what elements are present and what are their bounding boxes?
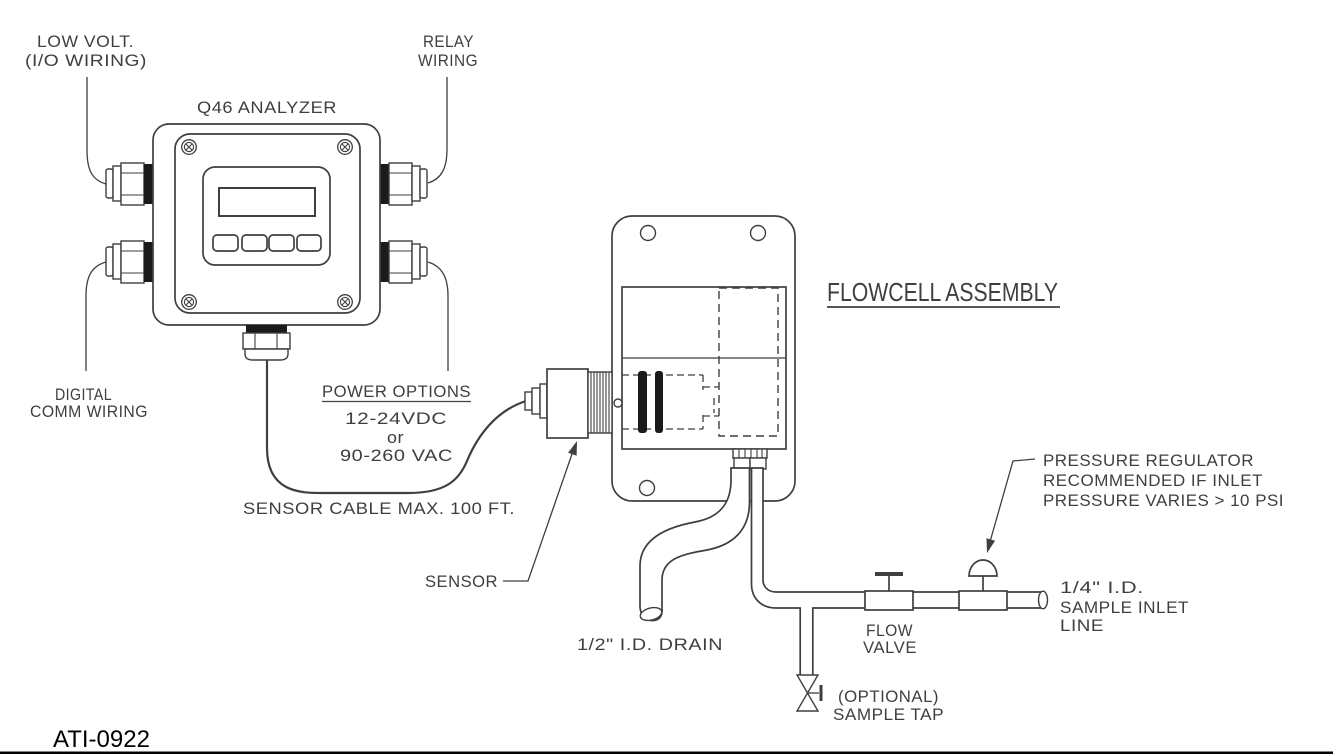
screw-icon: [182, 295, 197, 310]
gland-nut: [389, 241, 412, 283]
power-wire: [428, 262, 448, 371]
gland-end: [420, 247, 427, 276]
diagram-canvas: LOW VOLT. (I/O WIRING) RELAY WIRING Q46 …: [0, 0, 1333, 754]
analyzer-keypad: [213, 235, 321, 251]
gland-end: [106, 169, 113, 198]
gland-nut: [389, 163, 412, 205]
label-inlet-line1: 1/4" I.D.: [1060, 578, 1144, 597]
gland-cap: [412, 244, 420, 279]
label-flow-valve-line2: VALVE: [863, 638, 917, 657]
label-power-option-dc: 12-24VDC: [345, 409, 447, 428]
keypad-button-2: [242, 235, 267, 251]
screw-icon: [338, 140, 353, 155]
label-regulator-note-line3: PRESSURE VARIES > 10 PSI: [1043, 491, 1284, 510]
label-power-options-heading: POWER OPTIONS: [322, 382, 471, 401]
arrowhead-icon: [987, 538, 996, 553]
keypad-button-3: [269, 235, 294, 251]
screw-icon: [182, 140, 197, 155]
label-low-volt-line2: (I/O WIRING): [25, 51, 147, 70]
flow-valve-icon: [865, 574, 913, 610]
sample-tap-valve-icon: [797, 675, 821, 711]
gland-nut: [121, 163, 144, 205]
keypad-button-4: [297, 235, 321, 251]
relay-wire: [428, 77, 447, 183]
gland-cap: [113, 244, 121, 279]
keypad-button-1: [213, 235, 238, 251]
pressure-regulator-icon: [959, 560, 1007, 610]
gland-nut: [121, 241, 144, 283]
label-relay-line1: RELAY: [423, 32, 474, 51]
label-regulator-note-line2: RECOMMENDED IF INLET: [1043, 471, 1263, 490]
sensor-oring: [655, 371, 663, 433]
regulator-leader: [987, 459, 1036, 553]
label-inlet-line2: SAMPLE INLET: [1060, 598, 1189, 617]
tube-fittings: [733, 449, 767, 469]
label-sensor-cable-note: SENSOR CABLE MAX. 100 FT.: [243, 499, 515, 518]
flowcell-assembly: [612, 216, 795, 501]
label-low-volt-line1: LOW VOLT.: [37, 32, 134, 51]
label-flowcell-heading: FLOWCELL ASSEMBLY: [827, 277, 1058, 307]
sensor-assembly: [525, 369, 612, 438]
gland-end: [106, 247, 113, 276]
screw-icon: [338, 295, 353, 310]
cable-gland-left-top: [106, 163, 154, 205]
gland-cap: [412, 166, 420, 201]
sensor-connector-tip: [525, 392, 532, 410]
label-relay-line2: WIRING: [418, 51, 478, 70]
inlet-tube-and-pipe: [752, 468, 1044, 608]
gland-cap: [113, 166, 121, 201]
mounting-hole: [751, 226, 766, 241]
sensor-oring: [638, 371, 647, 433]
digital-comm-wire: [86, 262, 106, 371]
mounting-hole: [640, 481, 655, 496]
sample-inlet-piping: [752, 468, 1048, 711]
arrowhead-icon: [568, 441, 577, 456]
gland-locknut: [246, 325, 287, 333]
sensor-connector-base: [540, 384, 547, 418]
cable-gland-left-bottom: [106, 241, 154, 283]
cable-gland-right-top: [379, 163, 427, 205]
label-inlet-line3: LINE: [1060, 616, 1104, 635]
sensor-thread-hatch: [591, 372, 609, 433]
gland-end: [420, 169, 427, 198]
label-power-option-ac: 90-260 VAC: [340, 446, 453, 465]
sensor-body: [547, 369, 588, 438]
label-sensor: SENSOR: [425, 572, 498, 591]
pipe-open-end: [1039, 591, 1048, 609]
analyzer-enclosure: [106, 124, 427, 360]
label-analyzer-title: Q46 ANALYZER: [197, 98, 337, 117]
label-drain: 1/2" I.D. DRAIN: [577, 635, 723, 654]
tee-branch-fill: [801, 601, 812, 675]
drawing-number: ATI-0922: [53, 726, 150, 753]
label-sample-tap-line2: SAMPLE TAP: [833, 705, 944, 724]
installation-diagram: LOW VOLT. (I/O WIRING) RELAY WIRING Q46 …: [0, 0, 1333, 754]
cable-gland-bottom: [243, 325, 290, 360]
mounting-hole: [641, 226, 656, 241]
label-power-option-or: or: [387, 428, 404, 447]
label-regulator-note-line1: PRESSURE REGULATOR: [1043, 451, 1254, 470]
sensor-connector-mid: [532, 388, 540, 414]
flowcell-port-detail: [614, 399, 622, 407]
label-sample-tap-line1: (OPTIONAL): [838, 687, 939, 706]
gland-cap: [245, 349, 288, 360]
gland-nut: [243, 333, 290, 349]
low-volt-wire: [87, 77, 106, 184]
cable-gland-right-bottom: [379, 241, 427, 283]
label-digital-comm-line2: COMM WIRING: [30, 402, 148, 421]
